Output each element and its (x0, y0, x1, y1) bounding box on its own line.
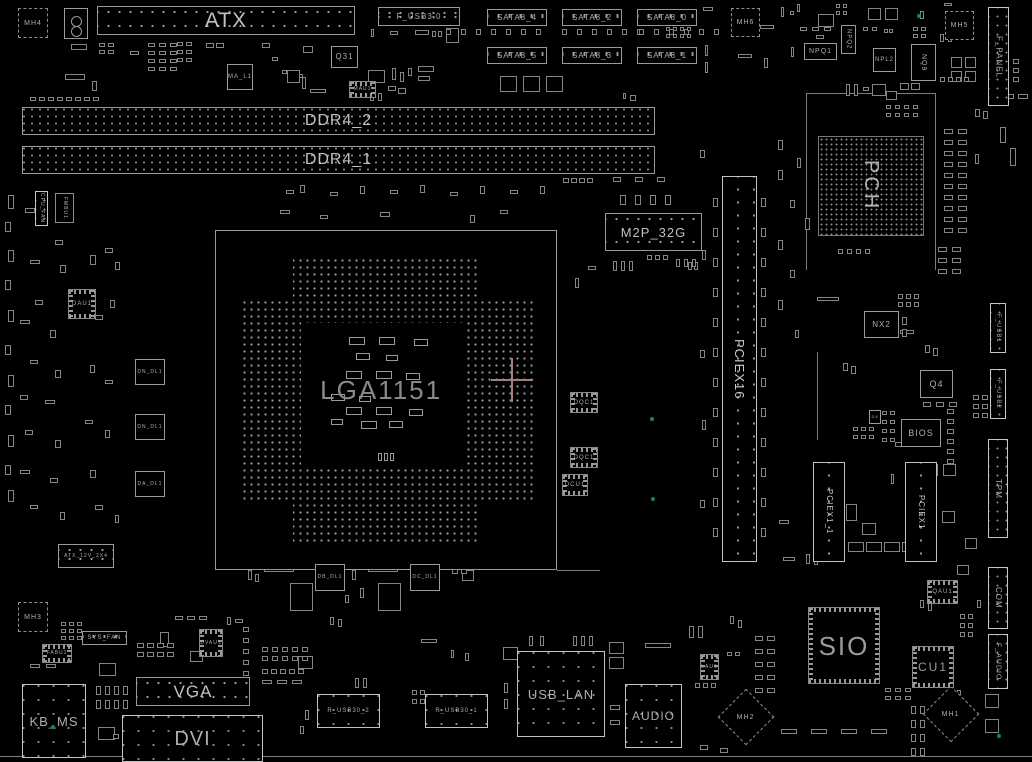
component-ddr4-1[interactable]: DDR4_1 (22, 146, 655, 174)
passive-component (885, 8, 898, 20)
component-d4[interactable]: D4 (869, 410, 881, 424)
passive-component (45, 400, 55, 404)
component-ma-l1[interactable]: MA_L1 (227, 64, 253, 90)
buzzer-pad (71, 26, 82, 37)
passive-component (824, 27, 831, 31)
passive-component (99, 50, 105, 54)
passive-component (958, 217, 967, 222)
passive-component (446, 29, 451, 35)
passive-component (30, 505, 38, 509)
passive-component (280, 669, 286, 674)
component-audio[interactable]: AUDIO (625, 684, 682, 748)
passive-component (645, 643, 671, 648)
passive-component (272, 647, 278, 652)
component-pciex1-label: PCIEX1 (917, 495, 925, 529)
passive-component (90, 255, 96, 265)
component-dau1[interactable]: DAU1 (68, 289, 96, 319)
passive-component (913, 105, 918, 109)
component-sata8-3[interactable]: SATA8_3 (562, 47, 622, 64)
passive-component (123, 686, 128, 695)
passive-component (791, 47, 794, 57)
passive-component (904, 105, 909, 109)
passive-component (110, 300, 115, 308)
passive-component (868, 8, 881, 20)
passive-component (856, 249, 861, 254)
passive-component (262, 647, 268, 652)
passive-component (905, 696, 911, 700)
passive-component (886, 91, 897, 100)
component-mh3[interactable]: MH3 (18, 602, 48, 632)
component-dqc1-label: DQC1 (574, 400, 595, 406)
passive-component (292, 647, 298, 652)
passive-component (713, 528, 718, 537)
passive-component (262, 43, 270, 48)
component-ddr4-1-label: DDR4_1 (305, 152, 372, 168)
passive-component (843, 4, 847, 8)
component-mh5[interactable]: MH5 (945, 11, 974, 40)
passive-component (760, 25, 774, 29)
component-npq1[interactable]: NPQ1 (804, 43, 837, 60)
passive-component (960, 623, 965, 628)
passive-component (378, 93, 382, 101)
passive-component (761, 408, 766, 417)
component-nq9-label: NQ9 (920, 54, 927, 71)
passive-component (415, 30, 429, 35)
component-mau1-label: MAU1 (354, 87, 372, 92)
passive-component (105, 380, 113, 384)
component-f-audio-label: F_AUDIO (995, 643, 1002, 680)
passive-component (665, 195, 671, 205)
component-vga-label: VGA (174, 683, 213, 700)
component-npq1-label: NPQ1 (809, 48, 832, 55)
passive-component (705, 62, 708, 73)
passive-component (898, 294, 903, 299)
component-r-usb30-1[interactable]: R_USB30_1 (425, 694, 488, 728)
passive-component (500, 76, 517, 92)
component-com-label: COM (994, 587, 1002, 609)
component-dc-dl1-label: DC_DL1 (412, 575, 437, 580)
passive-component (914, 302, 919, 307)
passive-component (610, 720, 620, 725)
component-dqc1[interactable]: DQC1 (570, 392, 598, 413)
passive-component (812, 27, 819, 31)
component-m2p-32g-label: M2P_32G (621, 226, 687, 239)
component-lga1151[interactable]: LGA1151 (215, 230, 557, 570)
passive-component (338, 619, 342, 627)
component-f-usb1[interactable]: F_USB1 (990, 303, 1006, 353)
passive-component (5, 405, 11, 415)
component-mh2[interactable]: MH2 (718, 689, 775, 746)
component-nx2-label: NX2 (872, 321, 891, 329)
passive-component (853, 427, 858, 431)
component-fabu1[interactable]: FABU1 (42, 644, 72, 663)
component-da-dl1[interactable]: DA_DL1 (135, 471, 165, 497)
passive-component (703, 7, 713, 11)
passive-component (108, 50, 114, 54)
passive-component (958, 206, 967, 211)
passive-component (956, 77, 961, 82)
passive-component (886, 105, 891, 109)
passive-component (504, 699, 508, 709)
component-qau1[interactable]: QAU1 (927, 580, 958, 604)
passive-component (964, 77, 969, 82)
cavity-passive (349, 337, 365, 345)
passive-component (186, 50, 192, 54)
passive-component (853, 435, 858, 439)
passive-component (587, 178, 593, 183)
passive-component (781, 7, 784, 17)
component-f-usb2[interactable]: F_USB2 (990, 369, 1006, 419)
passive-component (302, 647, 308, 652)
passive-component (69, 629, 74, 633)
passive-component (761, 348, 766, 357)
passive-component (35, 300, 43, 305)
passive-component (973, 413, 979, 418)
passive-component (262, 669, 268, 674)
passive-component (863, 87, 869, 91)
component-npq2[interactable]: NPQ2 (841, 25, 856, 54)
passive-component (66, 97, 72, 101)
passive-component (61, 636, 66, 640)
passive-component (216, 43, 224, 48)
passive-component (778, 140, 783, 150)
component-pciex16[interactable]: PCIEX16 (722, 176, 757, 562)
passive-component (137, 643, 144, 648)
passive-component (639, 29, 644, 35)
passive-component (388, 86, 396, 91)
passive-component (613, 261, 617, 271)
passive-component (713, 288, 718, 297)
passive-component (540, 636, 544, 646)
passive-component (170, 51, 177, 55)
passive-component (360, 588, 364, 598)
passive-component (99, 663, 116, 676)
component-ddr4-2[interactable]: DDR4_2 (22, 107, 655, 135)
component-sata8-5[interactable]: SATA8_5 (487, 47, 547, 64)
passive-component (418, 76, 430, 81)
component-npl2[interactable]: NPL2 (873, 48, 896, 72)
passive-component (96, 686, 101, 695)
passive-component (673, 27, 677, 31)
component-mau1[interactable]: MAU1 (349, 81, 376, 98)
passive-component (540, 186, 545, 194)
component-pciex1[interactable]: PCIEX1 (905, 462, 937, 562)
passive-component (938, 269, 947, 274)
component-mh1[interactable]: MH1 (923, 686, 980, 743)
passive-component (680, 27, 684, 31)
component-mh5-label: MH5 (951, 22, 969, 29)
passive-component (755, 688, 763, 693)
component-pciex1-1-label: PCIEX1_1 (825, 489, 833, 534)
passive-component (418, 66, 434, 72)
passive-component (115, 515, 119, 523)
passive-component (465, 653, 469, 661)
passive-component (50, 330, 56, 338)
passive-component (947, 429, 954, 434)
passive-component (95, 315, 103, 320)
passive-component (885, 696, 891, 700)
passive-component (714, 29, 719, 35)
passive-component (965, 57, 976, 68)
passive-component (982, 395, 988, 400)
passive-component (947, 409, 954, 414)
passive-component (1013, 59, 1019, 64)
passive-component (811, 729, 827, 734)
passive-component (575, 278, 579, 288)
component-mh6-label: MH6 (737, 19, 755, 26)
passive-component (727, 652, 732, 656)
passive-component (75, 97, 81, 101)
passive-component (886, 113, 891, 117)
passive-component (5, 465, 11, 475)
component-q4[interactable]: Q4 (920, 370, 953, 398)
passive-component (944, 217, 953, 222)
passive-component (99, 43, 105, 47)
passive-component (884, 542, 900, 552)
passive-component (779, 520, 789, 524)
component-atx[interactable]: ATX (97, 6, 355, 35)
passive-component (673, 34, 677, 38)
passive-component (944, 195, 953, 200)
silkscreen-line (806, 93, 807, 270)
passive-component (692, 259, 696, 267)
passive-component (563, 178, 569, 183)
component-sata8-2[interactable]: SATA8_2 (562, 9, 622, 26)
passive-component (863, 27, 868, 31)
component-pciex16-label: PCIEX16 (733, 339, 746, 399)
passive-component (968, 614, 973, 619)
passive-component (271, 669, 277, 674)
silkscreen-line (557, 570, 600, 571)
passive-component (938, 258, 947, 263)
passive-component (300, 726, 304, 734)
passive-component (61, 622, 66, 626)
passive-component (8, 250, 14, 262)
passive-component (841, 729, 857, 734)
component-dqc1[interactable]: DQC1 (570, 447, 598, 468)
component-dvi[interactable]: DVI (122, 715, 263, 762)
passive-component (320, 215, 328, 219)
passive-component (838, 249, 843, 254)
component-m2p-32g[interactable]: M2P_32G (605, 213, 702, 251)
passive-component (650, 195, 656, 205)
component-lau1[interactable]: LAU1 (700, 654, 719, 680)
component-pch[interactable]: PCH (818, 136, 924, 236)
passive-component (360, 186, 365, 194)
passive-component (943, 464, 956, 476)
passive-component (1013, 68, 1019, 73)
component-fmbu1[interactable]: FMBU1 (55, 193, 74, 223)
socket-corner-keepout (241, 501, 293, 545)
passive-component (713, 468, 718, 477)
passive-component (30, 97, 36, 101)
passive-component (761, 258, 766, 267)
passive-component (882, 438, 887, 442)
socket-label: LGA1151 (320, 377, 442, 403)
passive-component (421, 639, 437, 643)
passive-component (895, 688, 901, 692)
component-vga[interactable]: VGA (136, 677, 250, 706)
passive-component (890, 429, 895, 433)
component-r-usb30-2-label: R_USB30_2 (327, 708, 369, 714)
passive-component (450, 192, 458, 196)
passive-component (900, 83, 909, 90)
passive-component (577, 29, 582, 35)
component-bios[interactable]: BIOS (901, 419, 941, 447)
passive-component (8, 195, 14, 209)
passive-component (623, 93, 626, 99)
passive-component (629, 261, 633, 271)
passive-component (480, 186, 485, 194)
passive-component (420, 185, 425, 193)
passive-component (300, 185, 305, 193)
passive-component (698, 626, 703, 638)
passive-component (647, 255, 652, 260)
component-sata8-0[interactable]: SATA8_0 (637, 9, 697, 26)
passive-component (920, 748, 925, 756)
passive-component (730, 616, 734, 624)
component-da-dl1-label: DA_DL1 (138, 482, 163, 487)
component-dcu1[interactable]: DCU1 (562, 474, 588, 496)
component-sys-fan[interactable]: SYS_FAN (82, 631, 127, 645)
passive-component (676, 259, 680, 267)
component-sata8-1[interactable]: SATA8_1 (637, 47, 697, 64)
component-lau1-label: LAU1 (701, 665, 718, 670)
component-cu1[interactable]: CU1 (912, 646, 954, 688)
component-usb-lan[interactable]: USB_LAN (517, 651, 605, 737)
passive-component (958, 140, 967, 145)
passive-component (851, 366, 856, 374)
passive-component (105, 686, 110, 695)
passive-component (906, 302, 911, 307)
passive-component (702, 420, 706, 430)
component-atx-12v-2x4[interactable]: ATX_12V_2X4 (58, 544, 114, 568)
passive-component (895, 113, 900, 117)
passive-component (958, 173, 967, 178)
component-mh6[interactable]: MH6 (731, 8, 760, 37)
passive-component (938, 247, 947, 252)
passive-component (84, 97, 90, 101)
passive-component (982, 404, 988, 409)
cavity-passive (414, 339, 428, 346)
component-sata8-4[interactable]: SATA8_4 (487, 9, 547, 26)
passive-component (703, 683, 708, 688)
cavity-passive (389, 421, 403, 428)
passive-component (797, 4, 800, 12)
test-point-dot (651, 497, 655, 501)
cavity-passive (356, 353, 370, 360)
passive-component (663, 255, 668, 260)
passive-component (761, 468, 766, 477)
component-d4-label: D4 (871, 415, 878, 419)
cavity-passive (346, 407, 362, 415)
component-ddr4-2-label: DDR4_2 (305, 113, 372, 129)
passive-component (392, 68, 396, 80)
passive-component (755, 636, 763, 641)
passive-component (187, 616, 195, 620)
passive-component (506, 29, 511, 35)
passive-component (55, 240, 63, 245)
component-nx2[interactable]: NX2 (864, 311, 899, 338)
passive-component (968, 623, 973, 628)
passive-component (330, 617, 334, 625)
component-f-audio[interactable]: F_AUDIO (988, 634, 1008, 689)
component-tpm-label: TPM (994, 479, 1002, 499)
component-f-usb1-label: F_USB1 (995, 314, 1001, 343)
component-pciex1-1[interactable]: PCIEX1_1 (813, 462, 845, 562)
passive-component (965, 538, 977, 549)
component-dvau1[interactable]: DVAU1 (199, 629, 223, 657)
passive-component (159, 43, 166, 47)
passive-component (167, 652, 174, 657)
passive-component (589, 636, 593, 646)
passive-component (843, 363, 848, 371)
passive-component (944, 173, 953, 178)
passive-component (891, 474, 894, 484)
component-q31[interactable]: Q31 (331, 46, 358, 68)
passive-component (836, 4, 840, 8)
component-tpm[interactable]: TPM (988, 439, 1008, 538)
passive-component (921, 34, 926, 38)
passive-component (940, 34, 944, 42)
passive-component (635, 195, 641, 205)
passive-component (148, 59, 155, 63)
passive-component (412, 690, 417, 695)
passive-component (960, 632, 965, 637)
component-sio[interactable]: SIO (808, 607, 880, 684)
passive-component (400, 72, 404, 82)
component-sys-fan-label: SYS_FAN (87, 635, 121, 641)
passive-component (952, 258, 961, 263)
passive-component (609, 642, 624, 654)
component-mh2-label: MH2 (737, 714, 755, 721)
passive-component (521, 29, 526, 35)
passive-component (761, 198, 766, 207)
component-cu1-label: CU1 (918, 661, 948, 673)
component-f-usb3-0[interactable]: F_USB3.0 (378, 7, 460, 26)
component-kb-ms[interactable]: KB_MS (22, 684, 86, 758)
component-db-dl1[interactable]: DB_DL1 (315, 564, 345, 591)
passive-component (378, 583, 401, 611)
component-nq9[interactable]: NQ9 (911, 44, 936, 81)
component-audio-label: AUDIO (632, 710, 675, 722)
passive-component (952, 269, 961, 274)
component-f-panel[interactable]: F_PANEL (988, 7, 1009, 106)
component-dc-dl1[interactable]: DC_DL1 (410, 564, 440, 591)
passive-component (546, 76, 563, 92)
component-r-usb30-2[interactable]: R_USB30_2 (317, 694, 380, 728)
passive-component (147, 652, 154, 657)
component-r-usb30-1-label: R_USB30_1 (435, 708, 477, 714)
passive-component (882, 429, 887, 433)
component-mh4[interactable]: MH4 (18, 8, 48, 38)
passive-component (940, 77, 945, 82)
passive-component (958, 151, 967, 156)
passive-component (292, 680, 302, 684)
component-f-usb3-0-label: F_USB3.0 (397, 13, 442, 21)
passive-component (713, 258, 718, 267)
passive-component (795, 330, 799, 338)
passive-component (55, 440, 61, 448)
component-com[interactable]: COM (988, 567, 1008, 629)
passive-component (510, 190, 518, 194)
passive-component (137, 652, 144, 657)
component-dn-dl1[interactable]: DN_DL1 (135, 414, 165, 440)
component-cpu-fan[interactable]: CPU_FAN (35, 191, 48, 226)
passive-component (890, 438, 895, 442)
passive-component (797, 158, 801, 168)
component-dn-dl1[interactable]: DN_DL1 (135, 359, 165, 385)
